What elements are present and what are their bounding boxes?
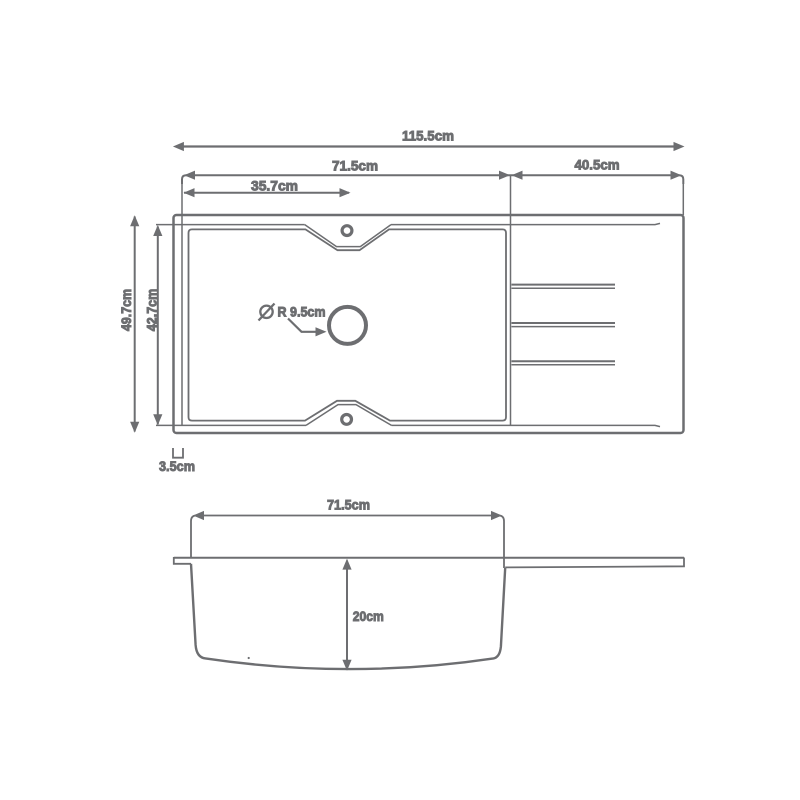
svg-text:71.5cm: 71.5cm (327, 497, 370, 513)
svg-text:42.7cm: 42.7cm (143, 289, 159, 331)
svg-text:3.5cm: 3.5cm (159, 458, 195, 474)
svg-text:115.5cm: 115.5cm (402, 128, 454, 144)
svg-text:35.7cm: 35.7cm (251, 178, 298, 194)
svg-text:40.5cm: 40.5cm (575, 157, 620, 173)
svg-text:71.5cm: 71.5cm (332, 158, 378, 174)
svg-text:20cm: 20cm (353, 608, 384, 624)
svg-text:49.7cm: 49.7cm (118, 289, 134, 331)
svg-text:R 9.5cm: R 9.5cm (278, 304, 326, 320)
